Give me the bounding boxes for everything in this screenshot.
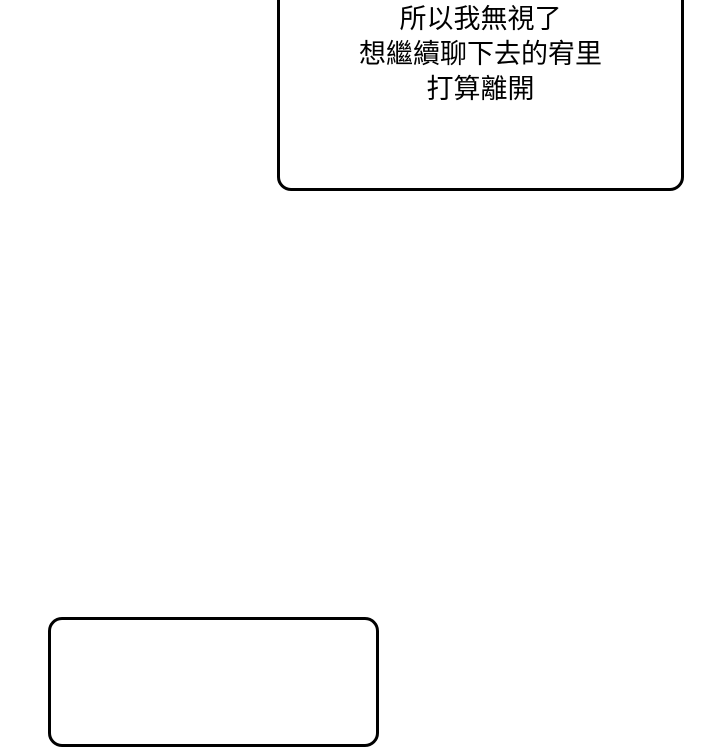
- speech-bubble-bottom: [48, 617, 379, 747]
- speech-line-2: 想繼續聊下去的宥里: [280, 37, 681, 72]
- speech-bubble-top-text: 所以我無視了 想繼續聊下去的宥里 打算離開: [280, 0, 681, 107]
- speech-line-3: 打算離開: [280, 72, 681, 107]
- speech-line-1: 所以我無視了: [280, 2, 681, 37]
- comic-panel-background: 所以我無視了 想繼續聊下去的宥里 打算離開: [0, 0, 720, 700]
- speech-bubble-top: 所以我無視了 想繼續聊下去的宥里 打算離開: [277, 0, 684, 191]
